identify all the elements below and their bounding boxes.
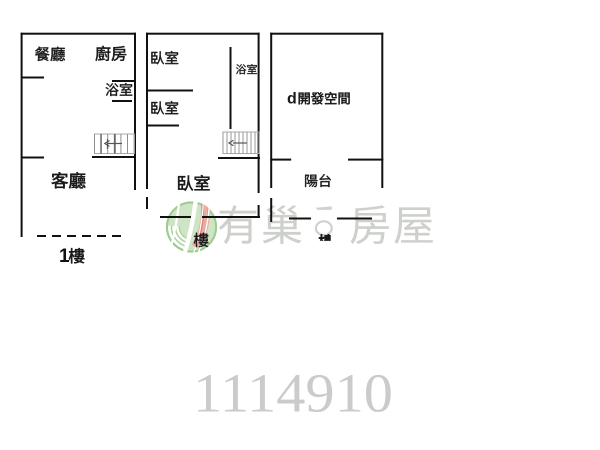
svg-text:1: 1 <box>59 246 70 267</box>
svg-text:d: d <box>287 90 297 107</box>
svg-text:1114910: 1114910 <box>193 363 393 424</box>
